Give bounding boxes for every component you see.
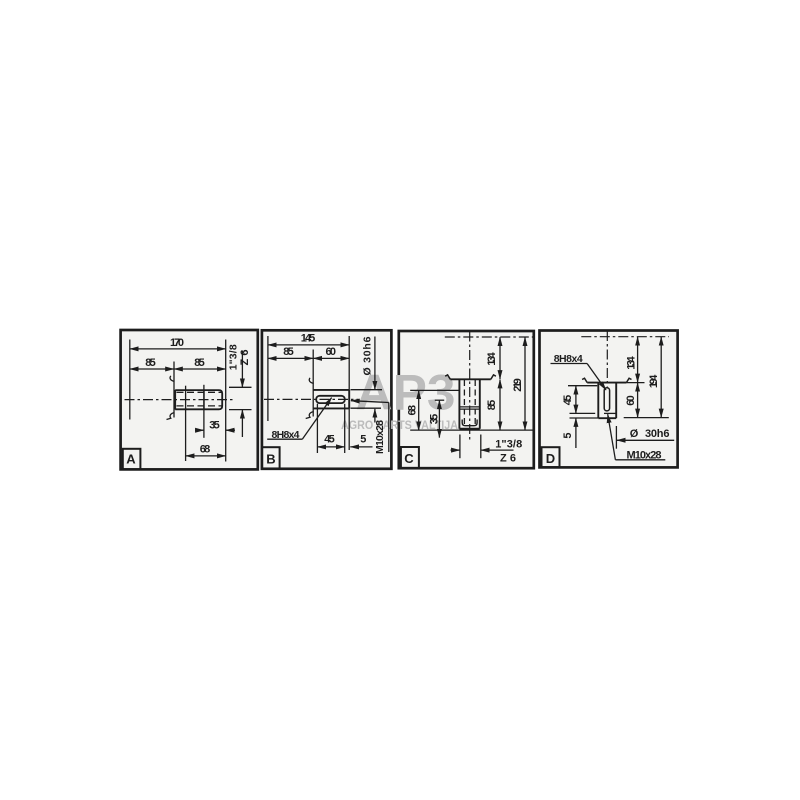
- svg-text:B: B: [266, 451, 275, 466]
- svg-text:85: 85: [145, 357, 156, 369]
- svg-text:68: 68: [406, 405, 418, 416]
- svg-text:45: 45: [562, 395, 574, 406]
- svg-text:30h6: 30h6: [645, 428, 670, 440]
- svg-text:68: 68: [200, 444, 211, 456]
- svg-text:8H8x4: 8H8x4: [554, 353, 583, 365]
- svg-text:60: 60: [625, 395, 637, 406]
- svg-text:1"3/8: 1"3/8: [228, 344, 240, 370]
- svg-text:134: 134: [486, 351, 498, 365]
- svg-text:170: 170: [170, 337, 184, 349]
- svg-text:85: 85: [486, 400, 498, 411]
- svg-text:219: 219: [512, 378, 524, 392]
- svg-text:85: 85: [194, 357, 205, 369]
- svg-text:134: 134: [625, 355, 637, 369]
- svg-text:D: D: [546, 451, 555, 466]
- svg-text:Ø: Ø: [630, 428, 639, 440]
- svg-text:45: 45: [324, 434, 335, 446]
- svg-text:C: C: [404, 451, 414, 466]
- svg-text:35: 35: [209, 420, 220, 432]
- svg-text:A: A: [126, 452, 136, 467]
- svg-text:194: 194: [648, 374, 660, 388]
- svg-text:M10x28: M10x28: [374, 420, 386, 454]
- svg-text:5: 5: [360, 434, 366, 446]
- svg-text:Z 6: Z 6: [500, 452, 516, 464]
- svg-text:145: 145: [301, 333, 316, 345]
- svg-text:M10x28: M10x28: [627, 449, 662, 461]
- svg-text:Ø 30h6: Ø 30h6: [362, 336, 374, 375]
- svg-text:8H8x4: 8H8x4: [272, 429, 300, 441]
- svg-text:Z 6: Z 6: [239, 350, 251, 366]
- svg-text:60: 60: [326, 346, 337, 358]
- svg-text:35: 35: [428, 414, 440, 425]
- svg-text:1"3/8: 1"3/8: [495, 438, 522, 450]
- svg-text:5: 5: [562, 432, 574, 438]
- svg-text:85: 85: [283, 346, 294, 358]
